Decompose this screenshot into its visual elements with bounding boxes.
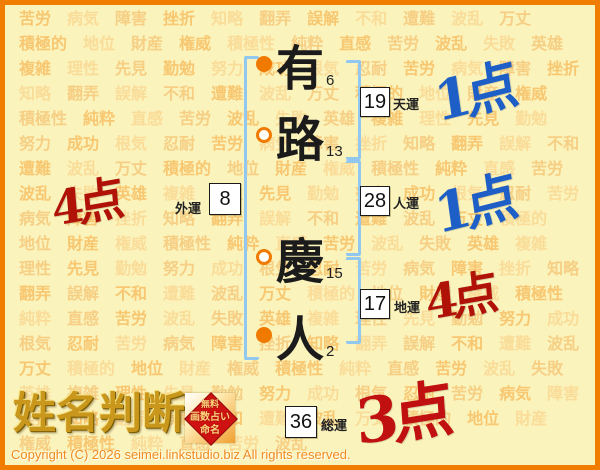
free-naming-seal-badge[interactable]: 無料 画数占い 命名 [185, 393, 235, 443]
background-word: 不和 [355, 7, 387, 32]
copyright-text: Copyright (C) 2026 seimei.linkstudio.biz… [11, 447, 351, 462]
background-word: 波乱 [19, 182, 51, 207]
background-word: 挫折 [499, 257, 531, 282]
background-word: 波乱 [163, 307, 195, 332]
background-word: 成功 [211, 257, 243, 282]
background-word: 苦労 [115, 332, 147, 357]
background-word: 複雑 [515, 232, 547, 257]
background-word: 忍耐 [163, 132, 195, 157]
background-word: 失敗 [211, 307, 243, 332]
background-word: 誤解 [403, 332, 435, 357]
seal-text: 無料 画数占い 命名 [185, 398, 235, 437]
background-word: 病気 [163, 332, 195, 357]
background-word: 地位 [19, 232, 51, 257]
background-word: 権威 [227, 357, 259, 382]
person-luck-label: 人運 [393, 193, 419, 212]
background-word: 知略 [403, 132, 435, 157]
background-word: 権威 [179, 32, 211, 57]
background-word: 地位 [83, 32, 115, 57]
background-word: 誤解 [259, 207, 291, 232]
char-bullet-icon [256, 56, 272, 72]
background-word: 英雄 [115, 182, 147, 207]
total-luck-label: 総運 [321, 415, 347, 434]
outer-luck-score: 4点 [48, 159, 121, 240]
name-kanji: 慶 [276, 237, 324, 289]
background-word: 純粋 [19, 307, 51, 332]
background-word: 先見 [115, 57, 147, 82]
background-word: 苦労 [19, 7, 51, 32]
background-word: 先見 [259, 182, 291, 207]
name-char-3: 慶 15 [256, 237, 356, 295]
background-word: 万丈 [19, 357, 51, 382]
background-word: 誤解 [67, 282, 99, 307]
background-word: 積極性 [19, 107, 67, 132]
background-word: 挫折 [163, 7, 195, 32]
background-word: 勤勉 [515, 107, 547, 132]
background-word: 積極的 [67, 357, 115, 382]
background-word: 地位 [467, 407, 499, 432]
background-word: 不和 [163, 82, 195, 107]
background-word: 権威 [515, 82, 547, 107]
background-word: 積極性 [371, 157, 419, 182]
background-word: 根気 [115, 132, 147, 157]
background-word: 理性 [67, 57, 99, 82]
background-word: 勤勉 [163, 57, 195, 82]
stroke-count: 13 [326, 143, 343, 160]
background-word: 障害 [115, 7, 147, 32]
background-word: 苦労 [387, 32, 419, 57]
earth-luck-label: 地運 [394, 297, 420, 316]
name-char-1: 有 6 [256, 44, 356, 102]
name-char-4: 人 2 [256, 315, 356, 373]
person-luck-value-box: 28 [360, 186, 390, 216]
background-word: 不和 [115, 282, 147, 307]
background-word: 失敗 [531, 357, 563, 382]
background-word: 不和 [307, 207, 339, 232]
background-word: 成功 [67, 132, 99, 157]
background-word: 知略 [211, 7, 243, 32]
stroke-count: 6 [326, 72, 334, 89]
seal-line-2: 画数占い [185, 411, 235, 424]
site-logo-link[interactable]: 姓名判断 [13, 389, 185, 439]
background-word: 努力 [19, 132, 51, 157]
name-kanji: 有 [276, 44, 324, 96]
earth-luck-value-box: 17 [360, 289, 390, 319]
background-word: 努力 [211, 57, 243, 82]
background-word: 根気 [19, 332, 51, 357]
background-word: 遭難 [403, 7, 435, 32]
background-word: 病気 [499, 382, 531, 407]
background-word: 遭難 [163, 282, 195, 307]
background-word: 苦労 [531, 157, 563, 182]
background-word: 忍耐 [67, 332, 99, 357]
background-word: 財産 [179, 357, 211, 382]
background-word: 不和 [547, 132, 579, 157]
background-word: 勤勉 [307, 182, 339, 207]
background-word: 知略 [547, 257, 579, 282]
background-word: 病気 [67, 7, 99, 32]
background-word: 先見 [67, 257, 99, 282]
background-word: 翻弄 [259, 7, 291, 32]
background-word: 純粋 [83, 107, 115, 132]
background-word: 波乱 [371, 232, 403, 257]
stroke-count: 2 [326, 343, 334, 360]
background-word: 波乱 [547, 332, 579, 357]
background-word: 理性 [19, 257, 51, 282]
background-word: 翻弄 [451, 132, 483, 157]
background-word: 苦労 [451, 382, 483, 407]
background-word: 積極性 [163, 232, 211, 257]
total-luck-value-box: 36 [285, 406, 317, 438]
background-word: 波乱 [211, 282, 243, 307]
char-bullet-icon [256, 327, 272, 343]
background-word: 波乱 [483, 357, 515, 382]
background-word: 地位 [131, 357, 163, 382]
background-word: 苦労 [547, 182, 579, 207]
background-word: 複雑 [19, 57, 51, 82]
background-word: 成功 [307, 382, 339, 407]
background-word: 翻弄 [67, 82, 99, 107]
name-char-2: 路 13 [256, 115, 356, 173]
background-word: 英雄 [531, 32, 563, 57]
background-word: 障害 [211, 332, 243, 357]
outer-luck-value-box: 8 [209, 183, 241, 215]
background-word: 積極性 [515, 282, 563, 307]
earth-luck-score: 4点 [422, 253, 495, 334]
seimei-result-page: 苦労病気障害挫折知略翻弄誤解不和遭難波乱万丈積極的地位財産権威積極性純粋直感苦労… [0, 0, 600, 470]
background-word: 病気 [19, 207, 51, 232]
background-word: 誤解 [115, 82, 147, 107]
heaven-luck-value-box: 19 [360, 87, 390, 117]
background-word: 努力 [499, 307, 531, 332]
background-word: 成功 [547, 307, 579, 332]
name-kanji: 人 [276, 315, 324, 367]
background-word: 権威 [115, 232, 147, 257]
background-word: 翻弄 [19, 282, 51, 307]
char-bullet-icon [256, 127, 272, 143]
background-word: 努力 [163, 257, 195, 282]
background-word: 不和 [451, 332, 483, 357]
background-word: 苦労 [115, 307, 147, 332]
background-word: 万丈 [499, 7, 531, 32]
background-word: 知略 [19, 82, 51, 107]
outer-luck-label: 外運 [175, 198, 201, 217]
background-word: 苦労 [211, 132, 243, 157]
background-word: 遭難 [19, 157, 51, 182]
background-word: 財産 [515, 407, 547, 432]
background-word: 勤勉 [115, 257, 147, 282]
seal-line-3: 命名 [185, 424, 235, 437]
background-word: 遭難 [211, 82, 243, 107]
heaven-luck-label: 天運 [393, 94, 419, 113]
background-word: 積極的 [163, 157, 211, 182]
seal-line-1: 無料 [185, 398, 235, 411]
background-word: 直感 [67, 307, 99, 332]
background-word: 遭難 [499, 332, 531, 357]
background-word: 努力 [259, 382, 291, 407]
background-word: 苦労 [179, 107, 211, 132]
char-bullet-icon [256, 249, 272, 265]
background-word: 誤解 [307, 7, 339, 32]
background-word: 波乱 [451, 7, 483, 32]
background-word: 万丈 [115, 157, 147, 182]
background-word: 挫折 [547, 57, 579, 82]
background-word: 障害 [547, 382, 579, 407]
stroke-count: 15 [326, 265, 343, 282]
background-word: 直感 [131, 107, 163, 132]
background-word: 財産 [131, 32, 163, 57]
background-word: 積極的 [19, 32, 67, 57]
name-kanji: 路 [276, 115, 324, 167]
total-luck-score: 3点 [352, 358, 450, 463]
